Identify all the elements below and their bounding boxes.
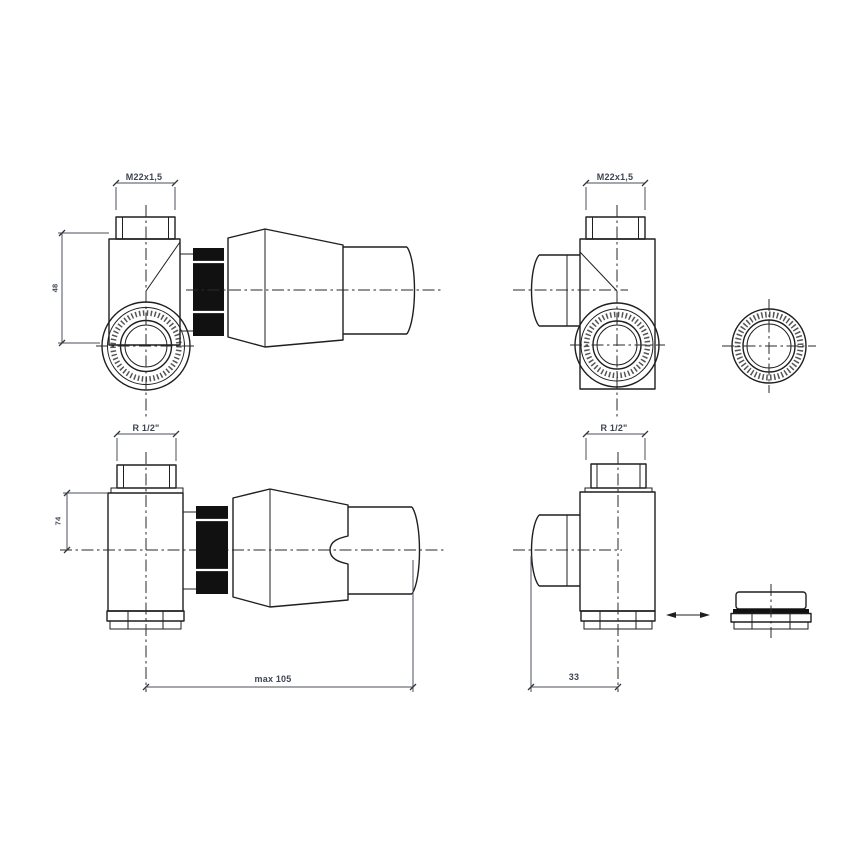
dimension-max105 bbox=[143, 560, 416, 692]
valve-tail-thread-c bbox=[111, 465, 183, 493]
dimension-r12-d bbox=[583, 431, 648, 460]
drawing-canvas: M22x1,5 48 M22x1,5 R 1/2" 74 max 105 R 1… bbox=[0, 0, 868, 868]
view-bottom-right bbox=[513, 431, 811, 692]
dimension-74 bbox=[63, 490, 108, 553]
dim-label-thread-bottom-right: R 1/2" bbox=[601, 423, 628, 433]
dimension-48 bbox=[58, 230, 109, 346]
dimension-m22-b bbox=[583, 180, 648, 210]
dim-label-height-top-left: 48 bbox=[51, 284, 60, 293]
body-chamfer-line bbox=[146, 242, 180, 291]
union-ring bbox=[722, 299, 816, 393]
thermostatic-head-c bbox=[233, 489, 420, 607]
body-chamfer-line-b bbox=[580, 252, 617, 291]
thermostatic-head bbox=[228, 229, 415, 347]
dim-label-offset-bottom-right: 33 bbox=[569, 672, 579, 682]
view-top-left bbox=[58, 180, 444, 419]
valve-line-art bbox=[0, 0, 868, 868]
blanking-cap bbox=[731, 584, 811, 638]
view-top-right bbox=[513, 180, 816, 419]
dim-label-max-length: max 105 bbox=[255, 674, 292, 684]
assembly-arrow bbox=[666, 612, 710, 618]
valve-tail-thread-b bbox=[586, 217, 645, 239]
dim-label-height-bottom-left: 74 bbox=[54, 517, 63, 526]
dim-label-thread-top-left: M22x1,5 bbox=[126, 172, 162, 182]
knurled-gland-ring-c bbox=[196, 506, 228, 594]
view-bottom-left bbox=[60, 431, 444, 692]
dim-label-thread-bottom-left: R 1/2" bbox=[133, 423, 160, 433]
knurled-gland-ring bbox=[193, 248, 224, 336]
dim-label-thread-top-right: M22x1,5 bbox=[597, 172, 633, 182]
valve-body-d bbox=[580, 492, 655, 611]
